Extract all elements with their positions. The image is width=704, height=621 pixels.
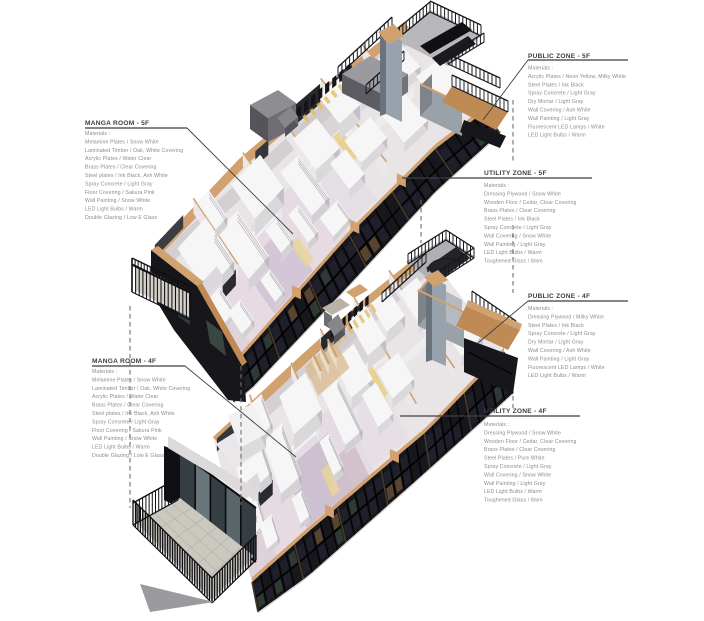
svg-text:Dry Mortar / Light Gray: Dry Mortar / Light Gray [528,99,584,105]
svg-text:Toughened Glass / 8mm: Toughened Glass / 8mm [484,498,543,504]
svg-text:Dressing Plywood / Snow White: Dressing Plywood / Snow White [484,191,561,197]
svg-text:Double Glazing / Low E Glass: Double Glazing / Low E Glass [85,215,158,221]
svg-text:Brass Plates / Clear Covering: Brass Plates / Clear Covering [85,165,157,171]
svg-text:Floor Covering / Sakura Pink: Floor Covering / Sakura Pink [85,190,155,196]
svg-text:Brass Plates / Clear Covering: Brass Plates / Clear Covering [484,208,556,214]
svg-text:MANGA ROOM - 5F: MANGA ROOM - 5F [85,120,149,127]
svg-text:Fluorescent LED Lamps / White: Fluorescent LED Lamps / White [528,365,605,371]
svg-text:Toughened Glass / 8mm: Toughened Glass / 8mm [484,259,543,265]
svg-text:Acrylic Plates / Water Clear: Acrylic Plates / Water Clear [85,156,151,162]
svg-text:LED Light Bulbs / Warm: LED Light Bulbs / Warm [92,445,150,451]
svg-text:UTILITY ZONE - 5F: UTILITY ZONE - 5F [484,170,547,177]
svg-text:Materials :: Materials : [85,131,110,137]
svg-text:LED Light Bulbs / Warm: LED Light Bulbs / Warm [85,207,143,213]
svg-text:Dressing Plywood / Snow White: Dressing Plywood / Snow White [484,430,561,436]
svg-text:Materials :: Materials : [484,422,509,428]
svg-text:Wall Covering / Ash White: Wall Covering / Ash White [528,108,591,114]
svg-text:Materials :: Materials : [484,183,509,189]
svg-text:Spray Concrete / Light Gray: Spray Concrete / Light Gray [484,464,552,470]
svg-text:Brass Plates / Clear Covering: Brass Plates / Clear Covering [484,447,556,453]
svg-text:Melamine Plates / Snow White: Melamine Plates / Snow White [92,377,166,383]
svg-text:Steel Plates / Ink Black: Steel Plates / Ink Black [484,217,540,223]
svg-text:LED Light Bulbs / Warm: LED Light Bulbs / Warm [484,250,542,256]
svg-text:Wall Painting / Light Gray: Wall Painting / Light Gray [484,481,546,487]
svg-text:Fluorescent LED Lamps / White: Fluorescent LED Lamps / White [528,124,605,130]
svg-text:Melamine Plates / Snow White: Melamine Plates / Snow White [85,139,159,145]
svg-text:Steel Plates / Ink Black: Steel Plates / Ink Black [528,82,584,88]
svg-text:Spray Concrete / Light Gray: Spray Concrete / Light Gray [85,181,153,187]
svg-text:Floor Covering / Sakura Pink: Floor Covering / Sakura Pink [92,428,162,434]
svg-text:Steel plates / Ink Black, Ash: Steel plates / Ink Black, Ash White [85,173,168,179]
svg-text:Wall Painting / Light Gray: Wall Painting / Light Gray [484,242,546,248]
svg-text:Wall Painting / Light Gray: Wall Painting / Light Gray [528,116,590,122]
svg-text:LED Light Bulbs / Warm: LED Light Bulbs / Warm [484,489,542,495]
svg-text:Wall Painting / Light Gray: Wall Painting / Light Gray [528,356,590,362]
svg-text:Wall Painting / Snow White: Wall Painting / Snow White [92,436,157,442]
svg-text:PUBLIC ZONE - 4F: PUBLIC ZONE - 4F [528,293,590,300]
svg-text:Dry Mortar / Light Gray: Dry Mortar / Light Gray [528,340,584,346]
svg-text:Wooden Floor / Cedar, Clear Co: Wooden Floor / Cedar, Clear Covering [484,200,576,206]
svg-text:MANGA ROOM - 4F: MANGA ROOM - 4F [92,358,156,365]
svg-text:UTILITY ZONE - 4F: UTILITY ZONE - 4F [484,408,547,415]
svg-text:Acrylic Plates / Water Clear: Acrylic Plates / Water Clear [92,394,158,400]
svg-text:Materials :: Materials : [528,66,553,72]
svg-text:LED Light Bulbs / Warm: LED Light Bulbs / Warm [528,133,586,139]
svg-text:Spray Concrete / Light Gray: Spray Concrete / Light Gray [484,225,552,231]
svg-text:Dressing Plywood / Milky White: Dressing Plywood / Milky White [528,314,604,320]
svg-text:Acrylic Plates / Neon Yellow,: Acrylic Plates / Neon Yellow, Milky Whit… [528,74,626,80]
svg-text:Materials :: Materials : [92,369,117,375]
svg-text:Laminated Timber / Oak, White: Laminated Timber / Oak, White Covering [85,148,183,154]
svg-text:Wall Covering / Ash White: Wall Covering / Ash White [528,348,591,354]
svg-text:Wall Covering / Snow White: Wall Covering / Snow White [484,233,551,239]
svg-text:Materials :: Materials : [528,306,553,312]
svg-text:Spray Concrete / Light Gray: Spray Concrete / Light Gray [528,331,596,337]
svg-text:Wooden Floor / Cedar, Clear Co: Wooden Floor / Cedar, Clear Covering [484,439,576,445]
svg-text:Spray Concrete / Light Gray: Spray Concrete / Light Gray [92,419,160,425]
svg-text:LED Light Bulbs / Warm: LED Light Bulbs / Warm [528,373,586,379]
svg-text:Spray Concrete / Light Gray: Spray Concrete / Light Gray [528,91,596,97]
svg-text:Laminated Timber / Oak, White: Laminated Timber / Oak, White Covering [92,386,190,392]
svg-text:Wall Painting / Snow White: Wall Painting / Snow White [85,198,150,204]
svg-text:Steel Plates / Ink Black: Steel Plates / Ink Black [528,323,584,329]
svg-text:PUBLIC ZONE - 5F: PUBLIC ZONE - 5F [528,53,590,60]
svg-text:Double Glazing / Low E Glass: Double Glazing / Low E Glass [92,453,165,459]
svg-text:Steel Plates / Pure White: Steel Plates / Pure White [484,456,545,462]
svg-text:Wall Covering / Snow White: Wall Covering / Snow White [484,472,551,478]
svg-text:Brass Plates / Clear Covering: Brass Plates / Clear Covering [92,403,164,409]
svg-text:Steel plates / Ink Black, Ash: Steel plates / Ink Black, Ash White [92,411,175,417]
